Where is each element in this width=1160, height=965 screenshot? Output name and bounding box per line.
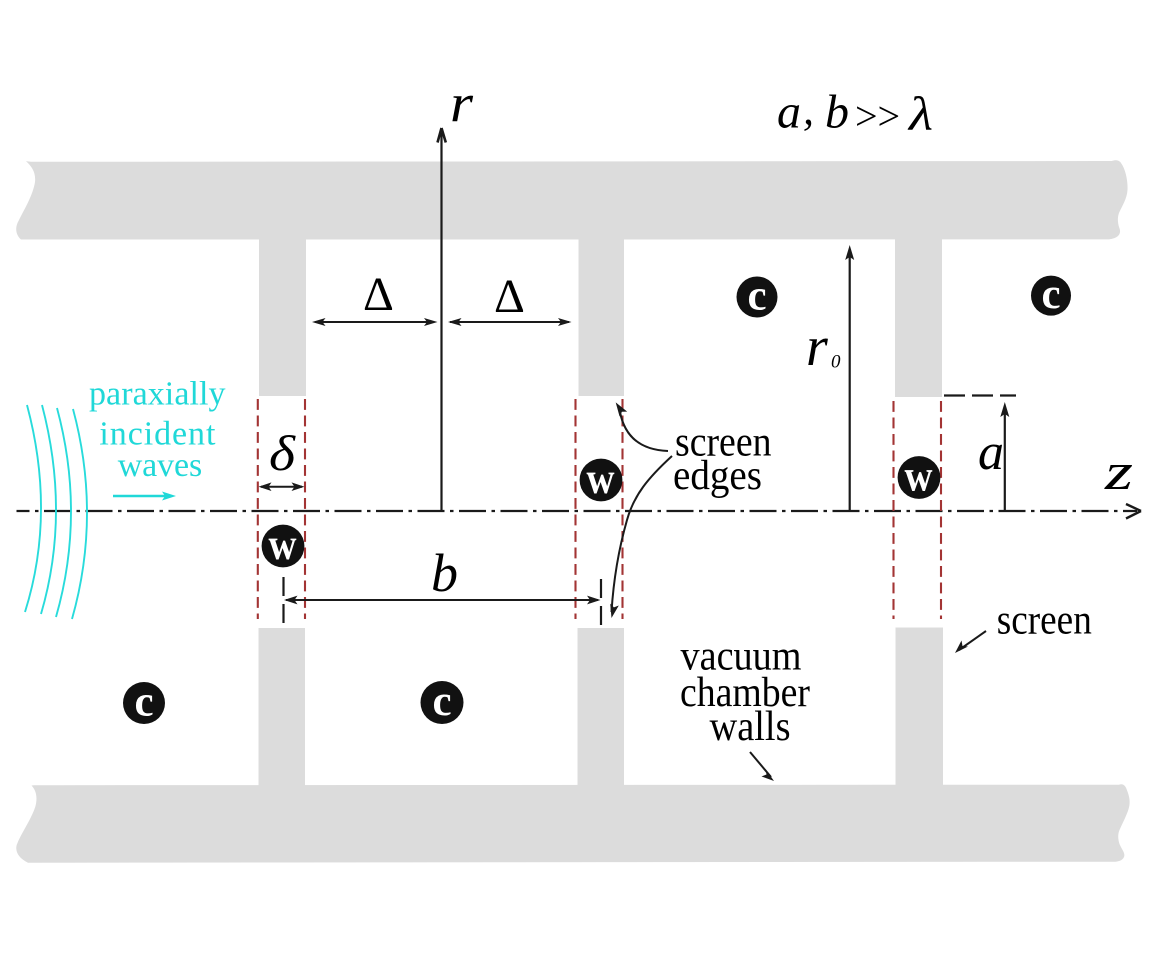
svg-text:a: a [777, 86, 801, 139]
svg-text:waves: waves [118, 447, 203, 484]
svg-text:paraxially: paraxially [89, 376, 226, 413]
svg-text:Δ: Δ [363, 268, 394, 321]
svg-text:b: b [431, 543, 458, 603]
svg-text:walls: walls [710, 704, 791, 750]
svg-text:w: w [587, 454, 615, 503]
svg-text:z: z [1104, 444, 1133, 501]
svg-text:w: w [269, 520, 297, 569]
svg-text:λ: λ [907, 88, 933, 141]
svg-text:screen: screen [997, 598, 1092, 644]
svg-text:Δ: Δ [494, 270, 525, 323]
svg-text:c: c [1041, 271, 1060, 318]
svg-text:w: w [905, 451, 933, 500]
svg-text:c: c [747, 273, 766, 320]
svg-text:>: > [855, 94, 878, 139]
svg-text:,: , [803, 85, 814, 134]
svg-text:r: r [806, 316, 828, 378]
svg-text:a: a [978, 424, 1004, 481]
svg-text:b: b [825, 86, 849, 139]
svg-text:δ: δ [269, 425, 296, 481]
svg-text:>: > [878, 94, 901, 139]
svg-text:edges: edges [673, 453, 762, 499]
svg-text:c: c [134, 679, 153, 726]
svg-text:0: 0 [831, 352, 841, 373]
svg-text:c: c [432, 678, 451, 725]
svg-text:r: r [450, 73, 474, 133]
